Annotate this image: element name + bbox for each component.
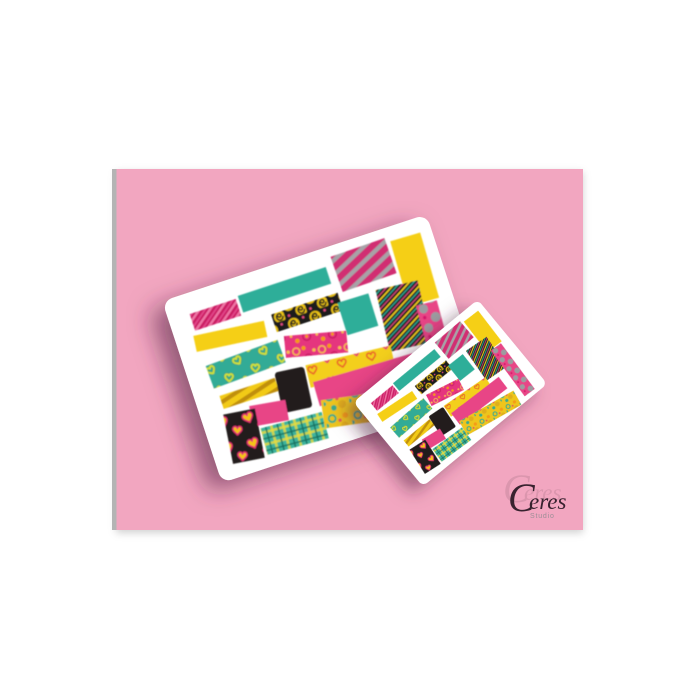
svg-text:eres: eres [529, 489, 567, 514]
svg-text:Studio: Studio [530, 513, 555, 520]
